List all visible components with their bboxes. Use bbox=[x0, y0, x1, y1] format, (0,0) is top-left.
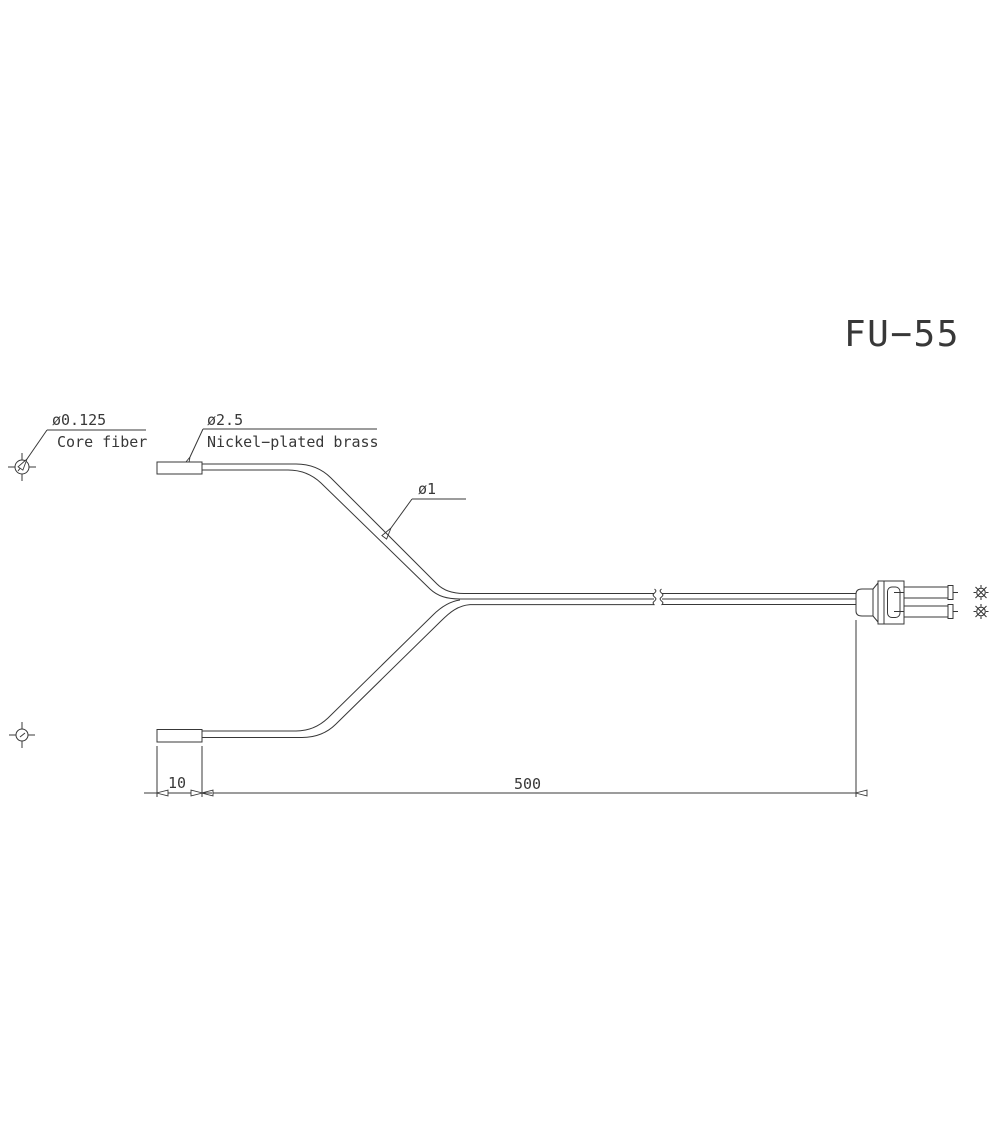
connector-flange bbox=[878, 581, 884, 624]
ferrule-material-label: Nickel−plated brass bbox=[207, 433, 379, 451]
connector-body-window bbox=[888, 587, 901, 618]
core-fiber-target-icon bbox=[8, 453, 36, 481]
lower-branch bbox=[9, 600, 654, 748]
ferrule-dia-label: ø2.5 bbox=[207, 411, 243, 429]
connector-prong-upper bbox=[904, 587, 948, 598]
core-fiber-dia-label: ø0.125 bbox=[52, 411, 106, 429]
dim-cable-length: 500 bbox=[514, 775, 541, 793]
core-fiber-callout: ø0.125 Core fiber bbox=[8, 411, 147, 481]
lower-ferrule bbox=[157, 730, 202, 743]
lower-target-icon bbox=[9, 722, 35, 748]
cable-dia-callout: ø1 bbox=[391, 480, 466, 528]
upper-branch bbox=[157, 462, 654, 599]
drawing-page: FU−55 ø0.125 Core fiber ø2.5 Nickel−plat… bbox=[0, 0, 1000, 1122]
drawing-title: FU−55 bbox=[844, 314, 960, 355]
lower-prong-target-icon bbox=[974, 604, 989, 619]
cable-break-symbol bbox=[653, 589, 663, 605]
duplex-connector bbox=[856, 581, 960, 624]
connector-boot bbox=[856, 589, 873, 616]
ferrule-callout: ø2.5 Nickel−plated brass bbox=[190, 411, 379, 457]
upper-ferrule bbox=[157, 462, 202, 474]
dim-ferrule-length: 10 bbox=[168, 774, 186, 792]
core-fiber-leader bbox=[27, 430, 47, 459]
dimensions: 10 500 bbox=[144, 620, 856, 797]
prong-target-symbols bbox=[974, 585, 989, 619]
lower-prong-tip bbox=[948, 605, 953, 619]
cable-dia-label: ø1 bbox=[418, 480, 436, 498]
lower-cable-outer-line bbox=[202, 605, 654, 738]
lower-cable-inner-line bbox=[202, 600, 460, 731]
core-fiber-name-label: Core fiber bbox=[57, 433, 147, 451]
main-cable bbox=[653, 589, 857, 605]
cable-dia-leader bbox=[391, 499, 412, 528]
ferrule-leader bbox=[190, 429, 203, 457]
connector-prong-lower bbox=[904, 606, 948, 617]
upper-prong-target-icon bbox=[974, 585, 989, 600]
upper-prong-tip bbox=[948, 586, 953, 600]
technical-drawing: FU−55 ø0.125 Core fiber ø2.5 Nickel−plat… bbox=[0, 0, 1000, 1122]
connector-taper bbox=[873, 583, 878, 622]
